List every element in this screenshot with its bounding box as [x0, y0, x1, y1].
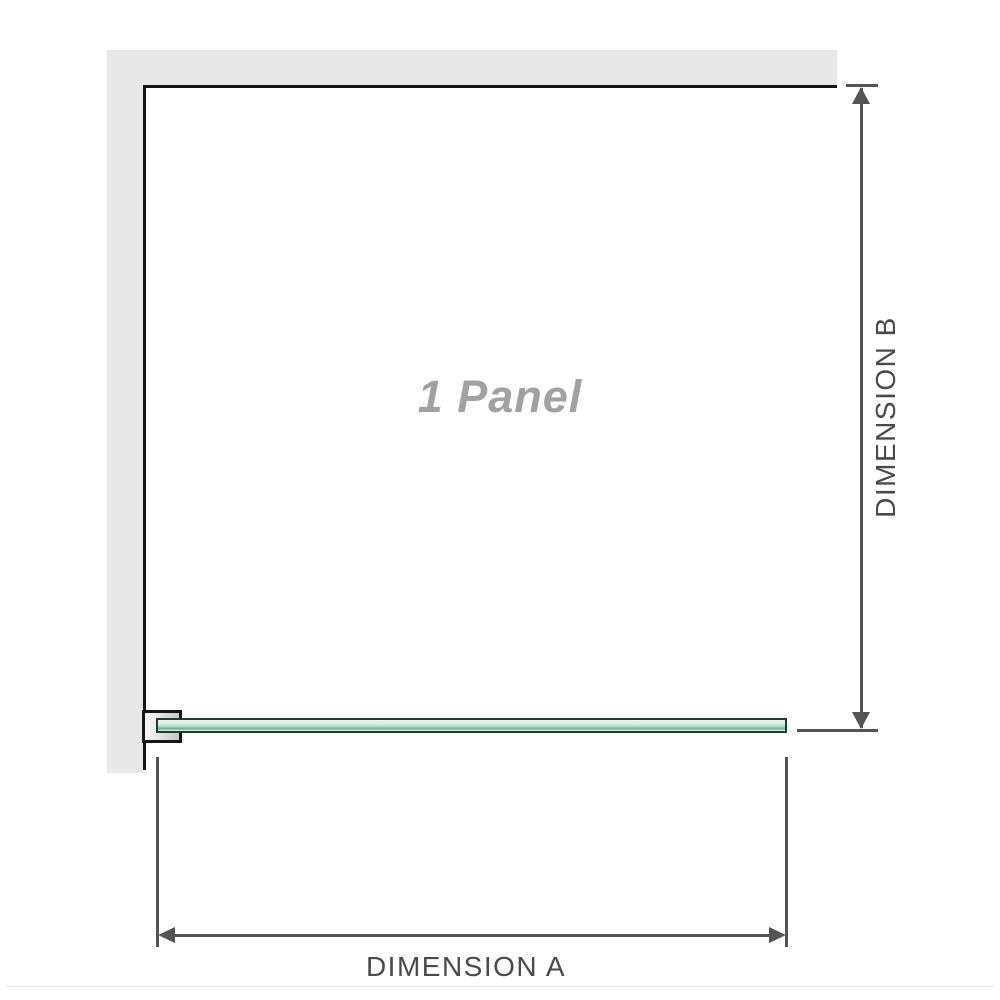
dimension-b-tick-bottom [797, 729, 878, 732]
dimension-b-line [860, 88, 863, 728]
arrow-down-icon [852, 712, 870, 729]
dimension-b-tick-top [846, 84, 878, 87]
dimension-a-label: DIMENSION A [166, 950, 766, 984]
glass-panel [156, 718, 787, 733]
arrow-left-icon [158, 927, 175, 943]
panel-outline-left [143, 85, 146, 770]
wall-top-band [107, 50, 837, 86]
dimension-a-extension-left [156, 757, 159, 947]
panel-outline-top [143, 85, 837, 88]
arrow-up-icon [852, 87, 870, 104]
arrow-right-icon [769, 927, 786, 943]
shower-panel-diagram: 1 Panel DIMENSION B DIMENSION A [0, 0, 1000, 1000]
dimension-a-line [170, 934, 772, 937]
panel-count-label: 1 Panel [300, 368, 700, 426]
dimension-a-extension-right [785, 757, 788, 947]
wall-left-band [107, 50, 143, 773]
dimension-b-label: DIMENSION B [870, 217, 902, 617]
footer-rule [5, 986, 995, 987]
